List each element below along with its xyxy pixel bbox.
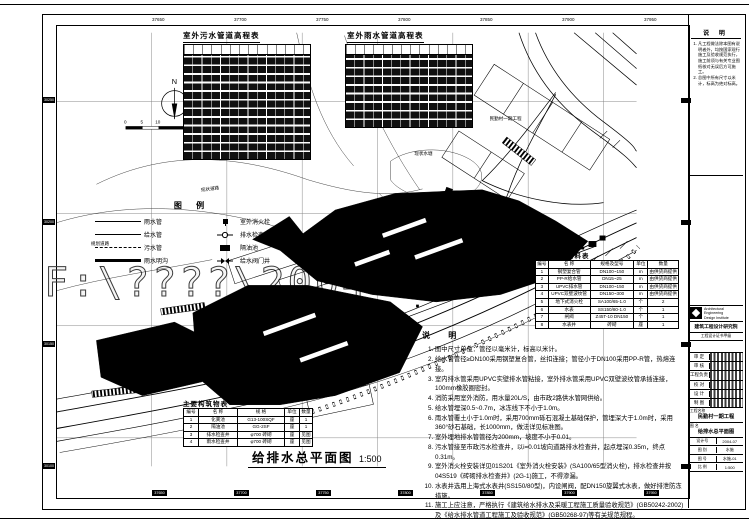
note-item: 消防采用室外消防，用水量20L/S，由市政2路供水管网供给。 <box>435 394 684 404</box>
svg-text:N: N <box>172 77 177 86</box>
note-item: 污水管接至市政污水检查井，以i=0.01坡向道路排水检查井，起点埋深0.35m，… <box>435 443 684 463</box>
note-item: 施工上应注意，严格执行《建筑给水排水及采暖工程施工质量验收规范》(GB50242… <box>435 501 684 521</box>
note-item: 室内排水管采用UPVC实壁排水管粘接，室外排水管采用UPVC双壁波纹管承插连接，… <box>435 375 684 395</box>
grid-tick-mark <box>681 342 691 347</box>
table-row: 3UPVC排水管DN100~150m由供货商提供 <box>536 283 679 291</box>
grid-coordinate-label: 37650 <box>152 490 167 496</box>
titleblock-company: Architectural Engineering Design Institu… <box>689 305 743 341</box>
table-row: 2PP-R给水管DN15~25m由供货商提供 <box>536 276 679 284</box>
grid-coordinate-label: 37700 <box>234 17 247 22</box>
signature-value <box>710 362 743 370</box>
signature-row: 制 图 <box>689 399 743 408</box>
grid-coordinate-label: 37750 <box>316 17 329 22</box>
titleblock-notes: 说 明 凡工程做法除本图有说明者外，均按国家现行施工及验收规范执行，施工前须与有… <box>689 26 743 176</box>
note-item: 室外埋地排水管管径为200mm，坡度不小于0.01。 <box>435 433 684 443</box>
open-ditch-symbol <box>92 259 144 262</box>
grid-coordinate-label: 37850 <box>480 490 495 496</box>
company-certificate: 工程设计证书甲级 <box>689 333 743 340</box>
meta-row: 图 号水施-01 <box>689 455 743 464</box>
meta-row: 比 例1:500 <box>689 463 743 472</box>
signature-value <box>710 399 743 407</box>
titleblock-notes-title: 说 明 <box>691 28 741 39</box>
grease-trap-icon <box>210 244 240 252</box>
drawing-name-box: 图 名 给排水总平面图 <box>689 423 743 438</box>
grid-coordinate-label: 37800 <box>398 17 411 22</box>
signature-value <box>710 353 743 361</box>
building-label: 民勤村一期工程 <box>490 115 522 122</box>
notes-title: 说 明 <box>422 330 684 342</box>
table-row: 4UPVC双壁波纹管DN150~300m由供货商提供 <box>536 291 679 299</box>
drawing-title: 给排水总平面图 1:500 <box>248 447 386 468</box>
grid-coordinate-label: 30150 <box>43 341 55 347</box>
signature-value <box>710 381 743 389</box>
drawing-scale: 1:500 <box>359 454 382 464</box>
svg-text:现状水塘: 现状水塘 <box>414 150 433 157</box>
rain-elevation-table <box>345 44 473 128</box>
project-name: 民勤村一期工程 <box>690 414 742 421</box>
rain-elevation-table-title: 室外雨水管道高程表 <box>347 30 424 43</box>
structures-header-row: 编号名 称 规 格单位 数量 <box>184 409 313 417</box>
grid-coordinate-label: 30250 <box>43 97 55 103</box>
svg-text:5: 5 <box>141 120 144 125</box>
company-en-line1: Architectural Engineering <box>704 307 724 315</box>
signature-row: 工程负责 <box>689 371 743 380</box>
legend-row: 雨水明沟 给水阀门井 <box>92 254 292 267</box>
grid-coordinate-label: 37700 <box>234 490 249 496</box>
signature-row: 校 对 <box>689 381 743 390</box>
legend-title: 图 例 <box>92 200 292 211</box>
note-item: 给水管管径≥DN100采用钢塑复合管，丝扣连接；管径小于DN100采用PP-R管… <box>435 355 684 375</box>
sewage-table-header <box>184 45 310 55</box>
hydrant-icon <box>210 218 240 226</box>
page-top-rule <box>0 4 749 5</box>
table-row: 5地下式消火栓SA100/65-1.0个2 <box>536 298 679 306</box>
signature-row: 审 核 <box>689 362 743 371</box>
legend-row: 给水管 排水检查井 <box>92 228 292 241</box>
legend-row: 雨水管 室外消火栓 <box>92 215 292 228</box>
svg-text:0: 0 <box>124 120 127 125</box>
project-name-box: 工程名称 民勤村一期工程 <box>689 408 743 423</box>
grid-coordinate-label: 37750 <box>316 490 331 496</box>
drawing-name: 给排水总平面图 <box>690 429 742 436</box>
signature-row: 审 定 <box>689 353 743 362</box>
table-row: 1钢塑复合管DN100~150m由供货商提供 <box>536 268 679 276</box>
rain-pipe-symbol <box>92 221 144 222</box>
design-institute-logo <box>690 307 702 319</box>
sewage-elevation-table-title: 室外污水管道高程表 <box>183 30 260 43</box>
signature-value <box>710 390 743 398</box>
titleblock-note: 凡工程做法除本图有说明者外，均按国家现行施工及验收规范执行，施工前须与有关专业图… <box>698 41 741 75</box>
materials-header-row: 编号名 称 规格及型号单位 数量 <box>536 261 679 269</box>
grid-coordinate-label: 37650 <box>152 17 165 22</box>
grid-coordinate-label: 30100 <box>43 463 55 469</box>
manhole-icon <box>210 231 240 239</box>
materials-table: 编号名 称 规格及型号单位 数量 1钢塑复合管DN100~150m由供货商提供 … <box>535 260 679 329</box>
note-item: 雨水管覆土小于1.0m时，采用700mm砾石混凝土基础保护，管埋深大于1.0m时… <box>435 414 684 434</box>
signature-value <box>710 371 743 379</box>
signature-row: 设 计 <box>689 390 743 399</box>
grid-coordinate-label: 37900 <box>562 490 577 496</box>
table-row: 8水表井砖砌座1 <box>536 321 679 329</box>
table-row: 7闸阀Z45T-10 DN150个1 <box>536 314 679 322</box>
table-row: 6水表SS150/80-1.0个1 <box>536 306 679 314</box>
grid-coordinate-label: 37950 <box>644 490 659 496</box>
valve-well-icon <box>210 257 240 265</box>
table-row: 4雨水检查井φ700 砖砌座见图 <box>184 439 313 447</box>
svg-text:现状道路: 现状道路 <box>200 184 220 194</box>
company-name: 建筑工程设计研究院 <box>689 322 743 333</box>
water-pipe-symbol <box>92 234 144 235</box>
cad-drawing-sheet: F:\????\2004 <box>0 0 749 530</box>
titleblock-signature-grid: 审 定 审 核 工程负责 校 对 设 计 制 图 工程名称 民勤村一期工程 图 … <box>689 352 743 472</box>
company-en-line2: Design Institute <box>704 316 729 320</box>
grid-coordinate-label: 37900 <box>562 17 575 22</box>
legend-row: 污水管 隔油池 <box>92 241 292 254</box>
grid-coordinate-label: 37950 <box>644 17 657 22</box>
table-row: 2隔油池GG-2SF座1 <box>184 424 313 432</box>
sewage-elevation-table <box>183 44 311 160</box>
note-item: 给水管埋深0.5~0.7m，冰冻线下不小于1.0m。 <box>435 404 684 414</box>
grid-coordinate-label: 30200 <box>43 219 55 225</box>
table-row: 1化粪池G13-100SQF座1 <box>184 416 313 424</box>
note-item: 室外消火栓安装详见01S201《室外消火栓安装》(SA100/65型消火栓)，排… <box>435 462 684 482</box>
sewage-pipe-symbol <box>92 247 144 248</box>
rain-table-header <box>346 45 472 55</box>
meta-row: 图 别水施 <box>689 446 743 455</box>
grid-coordinate-label: 37800 <box>398 490 413 496</box>
structures-table: 编号名 称 规 格单位 数量 1化粪池G13-100SQF座1 2隔油池GG-2… <box>183 408 313 447</box>
legend: 图 例 雨水管 室外消火栓 给水管 排水检查井 污水管 隔油池 雨水明沟 <box>92 200 292 267</box>
svg-text:10: 10 <box>155 120 161 125</box>
titleblock-note: 总图中所有尺寸以米计，标高为绝对标高。 <box>698 75 741 86</box>
grid-tick-mark <box>681 220 691 225</box>
note-item: 图中尺寸单位：管径以毫米计，标高以米计。 <box>435 345 684 355</box>
table-row: 3排水检查井φ700 砖砌座见图 <box>184 431 313 439</box>
grid-coordinate-label: 37850 <box>480 17 493 22</box>
meta-row: 设计号2004-07 <box>689 438 743 447</box>
